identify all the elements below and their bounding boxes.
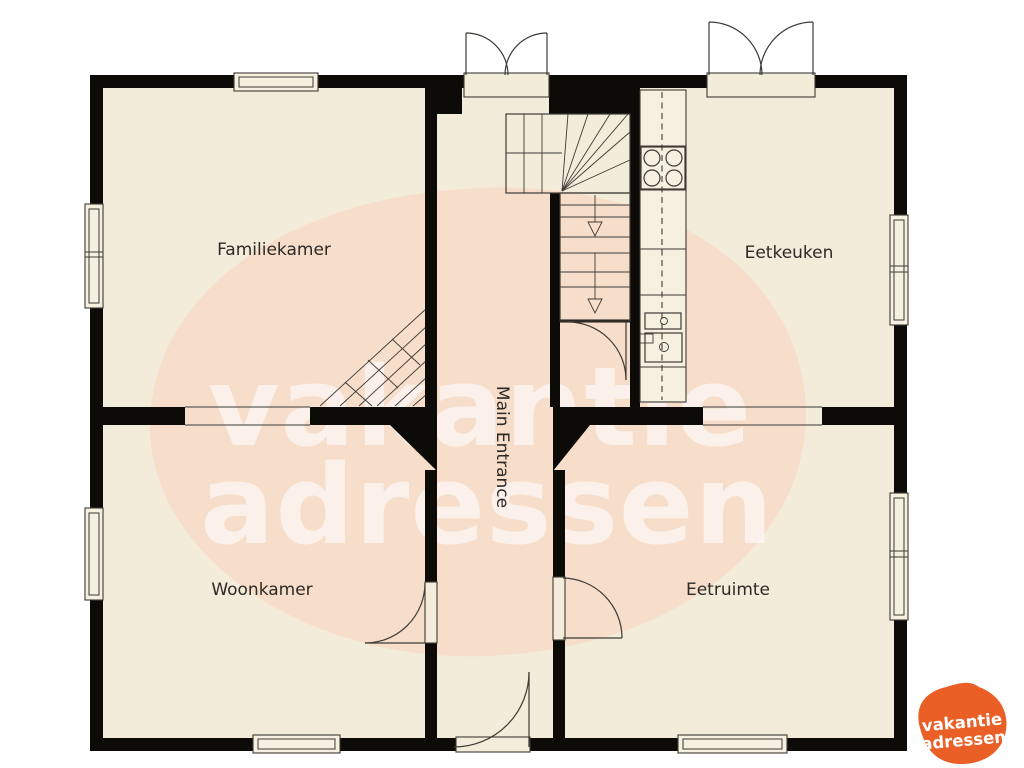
wall-mid-2 <box>310 407 437 425</box>
kitchen-counter-outline <box>640 90 686 402</box>
window-top <box>234 73 318 91</box>
wall-mid-1 <box>90 407 185 425</box>
wall-pillar-right <box>549 88 637 114</box>
window-bottom-left <box>253 735 340 753</box>
kitchen-counter <box>640 90 686 402</box>
room-label-eetkeuken: Eetkeuken <box>745 243 834 263</box>
window-left-upper <box>85 204 103 308</box>
floor-plan-page: vakantie adressen <box>0 0 1024 768</box>
wall-mid-3 <box>553 407 703 425</box>
wall-hall-west-mid <box>425 470 437 582</box>
window-left-lower <box>85 508 103 600</box>
window-bottom-right <box>678 735 787 753</box>
double-door-top-left <box>464 33 549 97</box>
wall-right <box>894 75 907 751</box>
double-door-top-right <box>707 22 815 97</box>
wall-stair-west <box>550 193 560 407</box>
wall-top-middle <box>549 75 707 88</box>
window-right-lower <box>890 493 908 620</box>
window-right-upper <box>890 215 908 325</box>
wall-top-right <box>815 75 907 88</box>
watermark-text-line2: adressen <box>200 441 774 569</box>
wall-pillar-left <box>425 88 462 114</box>
floor-plan-canvas: vakantie adressen <box>0 0 1024 768</box>
room-label-main-entrance: Main Entrance <box>492 386 512 508</box>
wall-mid-4 <box>822 407 894 425</box>
room-label-eetruimte: Eetruimte <box>686 580 770 600</box>
room-label-familiekamer: Familiekamer <box>217 240 331 260</box>
room-label-woonkamer: Woonkamer <box>211 580 312 600</box>
wall-hall-west-upper <box>425 88 437 407</box>
wall-kitchen-west <box>630 88 640 407</box>
logo-badge: vakantie adressen <box>918 683 1006 764</box>
wall-hall-east-lower <box>553 640 565 738</box>
wall-hall-west-lower <box>425 643 437 738</box>
wall-hall-east-mid <box>553 470 565 577</box>
